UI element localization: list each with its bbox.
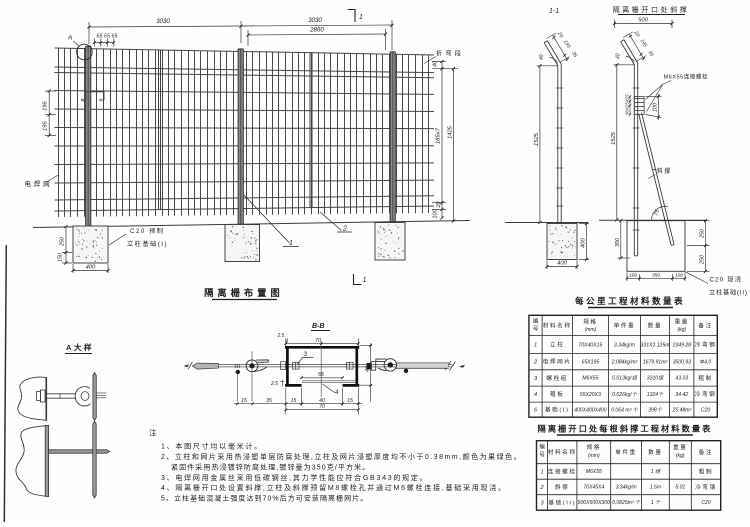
svg-text:1 组: 1 组 — [651, 468, 661, 475]
svg-text:1525: 1525 — [611, 131, 617, 145]
svg-text:500: 500 — [638, 18, 648, 24]
svg-text:C20 现浇: C20 现浇 — [710, 276, 743, 284]
svg-text:基础(II): 基础(II) — [548, 498, 576, 506]
svg-text:195: 195 — [43, 101, 49, 111]
svg-text:B: B — [99, 98, 104, 101]
svg-text:400: 400 — [86, 265, 96, 271]
svg-text:2349.28: 2349.28 — [672, 342, 692, 348]
svg-text:号: 号 — [533, 326, 539, 333]
svg-text:43.03: 43.03 — [675, 376, 688, 382]
svg-text:(mm): (mm) — [588, 453, 600, 459]
svg-text:1.5m: 1.5m — [650, 485, 661, 491]
svg-text:编: 编 — [533, 317, 539, 325]
svg-text:3、电焊网用金属丝采用低碳钢丝,其力学性能应符合GB343的: 3、电焊网用金属丝采用低碳钢丝,其力学性能应符合GB343的规定。 — [161, 473, 428, 482]
svg-text:M6X55连接螺栓: M6X55连接螺栓 — [664, 73, 709, 81]
svg-text:1-1: 1-1 — [549, 8, 559, 15]
svg-text:4、隔离栅开口处设置斜撑,立柱及斜撑预留M8螺栓孔并通过M6: 4、隔离栅开口处设置斜撑,立柱及斜撑预留M8螺栓孔并通过M6螺栓连接,基础采用现… — [161, 483, 507, 492]
svg-text:500X500X300: 500X500X300 — [578, 500, 610, 506]
svg-text:电焊网片: 电焊网片 — [543, 358, 572, 366]
svg-text:2: 2 — [342, 226, 347, 233]
svg-text:250: 250 — [700, 229, 706, 239]
svg-text:55: 55 — [318, 372, 325, 378]
svg-text:1679.91m²: 1679.91m² — [643, 359, 668, 365]
svg-text:1: 1 — [363, 277, 367, 284]
svg-text:备注: 备注 — [699, 448, 713, 456]
svg-text:号: 号 — [539, 452, 545, 459]
svg-text:螺栓组: 螺栓组 — [546, 374, 568, 382]
svg-text:1: 1 — [534, 343, 537, 349]
svg-text:箍板: 箍板 — [550, 390, 564, 398]
svg-text:15: 15 — [241, 398, 247, 404]
svg-text:立柱: 立柱 — [550, 341, 564, 349]
svg-text:单件重: 单件重 — [615, 448, 637, 456]
svg-text:数量: 数量 — [648, 448, 662, 456]
svg-text:连接螺栓: 连接螺栓 — [548, 467, 577, 475]
svg-text:材料名称: 材料名称 — [548, 448, 577, 456]
svg-text:规格: 规格 — [587, 443, 601, 451]
svg-text:2.5: 2.5 — [270, 381, 278, 387]
svg-text:C20 预制: C20 预制 — [130, 227, 164, 235]
svg-text:1: 1 — [289, 240, 293, 247]
svg-text:注: 注 — [149, 428, 157, 438]
svg-text:3030: 3030 — [156, 18, 170, 25]
svg-text:40: 40 — [616, 53, 622, 59]
svg-text:70X45X4: 70X45X4 — [583, 485, 604, 491]
svg-text:紧固件采用热浸镀锌防腐处理,镀锌量为350克/平方米。: 紧固件采用热浸镀锌防腐处理,镀锌量为350克/平方米。 — [171, 463, 370, 472]
svg-text:冷弯钢: 冷弯钢 — [695, 341, 717, 349]
svg-text:55X20X3: 55X20X3 — [580, 392, 601, 398]
svg-text:(kg): (kg) — [677, 327, 686, 333]
svg-text:150: 150 — [58, 253, 64, 262]
svg-text:65X195: 65X195 — [582, 359, 600, 365]
svg-text:折弯段: 折弯段 — [436, 50, 464, 58]
svg-text:1: 1 — [359, 14, 363, 21]
svg-text:M6X55: M6X55 — [582, 376, 598, 382]
svg-text:350: 350 — [615, 238, 621, 247]
svg-text:5、立柱基础混凝土强度达到70%后方可安装隔离栅网片。: 5、立柱基础混凝土强度达到70%后方可安装隔离栅网片。 — [161, 494, 368, 503]
svg-text:40: 40 — [539, 54, 545, 60]
svg-text:25.48m³: 25.48m³ — [671, 407, 691, 413]
svg-text:隔离栅开口处斜撑: 隔离栅开口处斜撑 — [613, 5, 690, 14]
svg-text:0.064 m³ 个: 0.064 m³ 个 — [611, 406, 639, 413]
svg-text:35: 35 — [266, 398, 272, 404]
svg-text:B: B — [80, 98, 85, 101]
svg-text:100: 100 — [433, 210, 439, 219]
svg-text:Φ4.0: Φ4.0 — [700, 359, 712, 365]
svg-text:400X400X400: 400X400X400 — [574, 407, 606, 413]
svg-text:3500.93: 3500.93 — [673, 359, 692, 365]
svg-text:A大样: A大样 — [66, 342, 94, 352]
svg-text:冷弯钢: 冷弯钢 — [695, 483, 717, 491]
svg-text:50X25X25: 50X25X25 — [625, 94, 630, 115]
svg-text:2.084kg/m²: 2.084kg/m² — [611, 359, 638, 365]
svg-text:400: 400 — [581, 238, 587, 248]
svg-text:185x7: 185x7 — [436, 127, 442, 144]
svg-text:40: 40 — [365, 366, 371, 372]
svg-text:隔离栅开口处每根斜撑工程材料数量表: 隔离栅开口处每根斜撑工程材料数量表 — [538, 424, 713, 434]
svg-text:电焊网: 电焊网 — [25, 179, 53, 188]
svg-text:基础(I): 基础(I) — [545, 406, 569, 414]
svg-text:冷弯钢: 冷弯钢 — [695, 390, 717, 398]
svg-text:34.42: 34.42 — [675, 392, 688, 398]
svg-text:398个: 398个 — [648, 406, 662, 413]
svg-text:250: 250 — [60, 237, 66, 247]
svg-text:(kg): (kg) — [676, 453, 685, 459]
svg-text:350: 350 — [652, 273, 660, 279]
svg-text:100: 100 — [653, 103, 659, 112]
svg-text:0.013kg/组: 0.013kg/组 — [612, 375, 638, 382]
svg-text:195: 195 — [43, 121, 49, 131]
svg-text:单件重: 单件重 — [614, 321, 636, 329]
svg-text:3.34kg/m: 3.34kg/m — [614, 342, 635, 348]
svg-text:65 65 65: 65 65 65 — [97, 34, 119, 40]
svg-text:40: 40 — [319, 398, 325, 404]
svg-text:备注: 备注 — [698, 321, 712, 329]
svg-text:M6X55: M6X55 — [586, 469, 602, 475]
svg-text:250: 250 — [700, 255, 706, 265]
svg-text:1、本图尺寸均以毫米计。: 1、本图尺寸均以毫米计。 — [161, 442, 263, 451]
svg-text:0.026kg/个: 0.026kg/个 — [612, 391, 638, 398]
svg-text:粗制: 粗制 — [698, 374, 712, 382]
svg-text:100: 100 — [629, 273, 637, 279]
svg-text:100: 100 — [675, 273, 683, 279]
svg-text:隔离栅布置图: 隔离栅布置图 — [204, 287, 284, 298]
svg-text:70: 70 — [319, 404, 325, 410]
svg-text:C20: C20 — [701, 407, 711, 413]
svg-text:立柱基础(I): 立柱基础(I) — [127, 240, 168, 248]
svg-text:0.0825m³ 个: 0.0825m³ 个 — [612, 499, 641, 506]
svg-text:1: 1 — [540, 469, 543, 475]
svg-text:材料名称: 材料名称 — [543, 321, 572, 329]
svg-text:331X2.125m: 331X2.125m — [641, 342, 670, 348]
svg-text:1525: 1525 — [534, 132, 540, 146]
svg-text:编: 编 — [539, 443, 545, 451]
svg-text:1425: 1425 — [448, 125, 454, 139]
svg-text:70X40X15: 70X40X15 — [579, 342, 603, 348]
svg-text:20: 20 — [436, 202, 442, 209]
svg-text:粗制: 粗制 — [699, 467, 713, 475]
svg-text:15: 15 — [347, 398, 353, 404]
svg-text:2.5: 2.5 — [277, 333, 285, 339]
svg-text:斜撑: 斜撑 — [555, 483, 569, 491]
svg-text:400: 400 — [557, 261, 567, 267]
svg-text:3310组: 3310组 — [647, 375, 664, 382]
svg-text:B-B: B-B — [312, 323, 324, 330]
svg-text:C20: C20 — [701, 500, 711, 506]
svg-text:40: 40 — [433, 61, 439, 67]
svg-text:2、立柱和网片采用热浸塑单层防腐处理,立柱及网片浸塑厚度均不: 2、立柱和网片采用热浸塑单层防腐处理,立柱及网片浸塑厚度均不小于0.38mm,颜… — [161, 452, 522, 461]
svg-text:A: A — [67, 35, 72, 42]
svg-text:4: 4 — [534, 392, 537, 398]
svg-text:1324个: 1324个 — [647, 391, 664, 398]
svg-text:立柱基础(II): 立柱基础(II) — [709, 289, 748, 297]
svg-text:数量: 数量 — [648, 321, 662, 329]
svg-text:5.01: 5.01 — [675, 485, 685, 491]
svg-text:2860: 2860 — [309, 27, 324, 34]
svg-text:(mm): (mm) — [585, 327, 597, 333]
svg-text:斜撑: 斜撑 — [657, 167, 673, 175]
svg-text:1 个: 1 个 — [651, 499, 661, 506]
svg-text:每公里工程材料数量表: 每公里工程材料数量表 — [575, 295, 685, 306]
svg-text:70: 70 — [315, 338, 321, 344]
svg-text:规格: 规格 — [583, 318, 597, 326]
svg-text:3030: 3030 — [308, 17, 322, 24]
svg-text:15: 15 — [291, 398, 297, 404]
svg-text:3.34kg/m: 3.34kg/m — [616, 485, 637, 491]
svg-text:重量: 重量 — [673, 443, 687, 451]
svg-text:重量: 重量 — [675, 318, 689, 326]
